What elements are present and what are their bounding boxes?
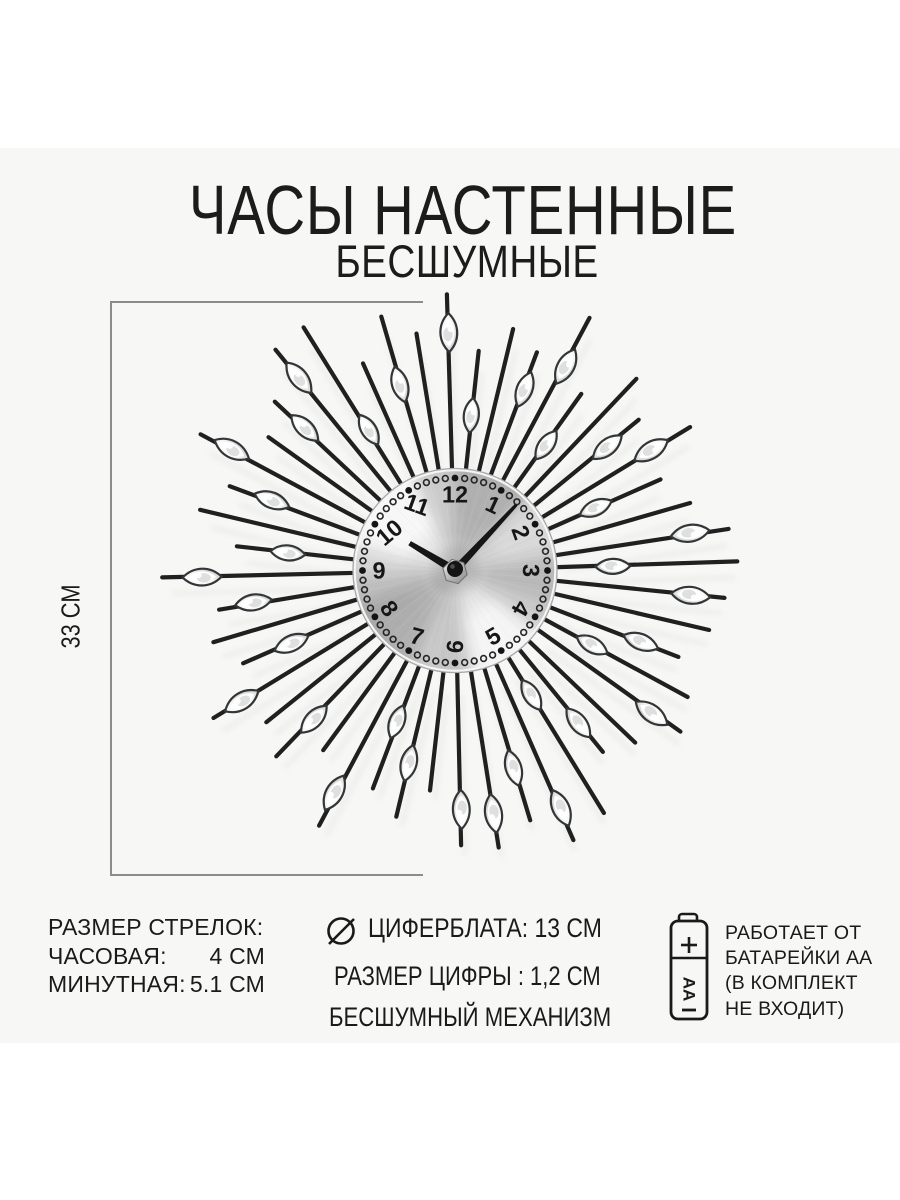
svg-text:3: 3 <box>518 564 544 577</box>
svg-text:9: 9 <box>372 558 385 584</box>
svg-text:12: 12 <box>442 482 468 508</box>
svg-text:AA: AA <box>680 977 699 1002</box>
svg-text:6: 6 <box>441 639 468 654</box>
